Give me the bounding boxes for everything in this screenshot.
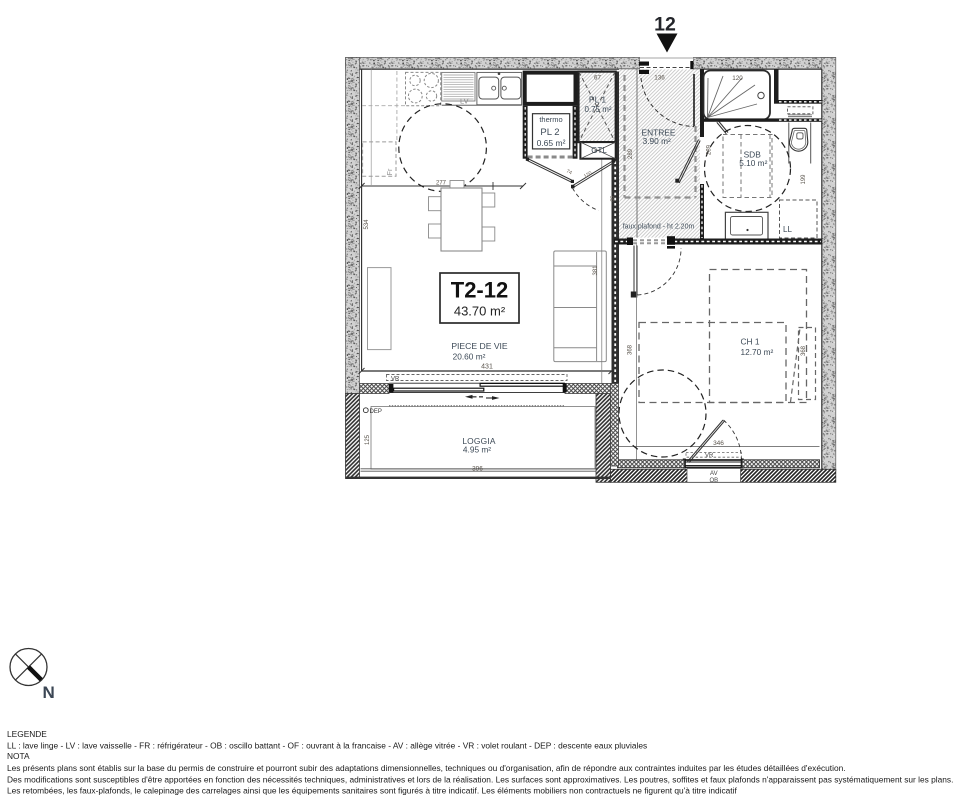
- svg-text:0.65 m²: 0.65 m²: [537, 138, 566, 148]
- svg-text:289: 289: [628, 148, 634, 159]
- svg-text:AV: AV: [710, 471, 718, 477]
- svg-text:136: 136: [654, 75, 665, 82]
- svg-text:GTL: GTL: [591, 146, 607, 155]
- svg-text:Les retombées, les faux-plafon: Les retombées, les faux-plafonds, le cal…: [7, 786, 737, 796]
- svg-text:368: 368: [801, 345, 807, 356]
- svg-text:VR: VR: [705, 453, 714, 459]
- svg-text:DEP: DEP: [370, 409, 382, 415]
- svg-text:N: N: [43, 683, 55, 702]
- svg-text:LV: LV: [460, 97, 469, 106]
- svg-text:LL : lave linge - LV : lave v: LL : lave linge - LV : lave vaisselle - …: [7, 741, 647, 751]
- svg-text:120: 120: [732, 75, 743, 82]
- svg-text:125: 125: [365, 434, 371, 445]
- svg-text:NOTA: NOTA: [7, 751, 30, 761]
- svg-text:431: 431: [481, 364, 493, 371]
- svg-text:OB: OB: [709, 478, 718, 484]
- svg-text:277: 277: [436, 181, 447, 187]
- svg-text:3.90 m²: 3.90 m²: [643, 136, 671, 146]
- svg-text:534: 534: [364, 219, 370, 230]
- svg-text:Les présents plans sont établi: Les présents plans sont établis sur la b…: [7, 763, 846, 773]
- svg-text:LEGENDE: LEGENDE: [7, 729, 47, 739]
- svg-text:PL 2: PL 2: [540, 127, 559, 138]
- svg-text:PIECE DE VIE: PIECE DE VIE: [451, 341, 508, 351]
- svg-text:289: 289: [707, 144, 713, 155]
- svg-text:199: 199: [801, 174, 807, 185]
- svg-text:PL 1: PL 1: [589, 95, 606, 105]
- svg-text:CH 1: CH 1: [740, 337, 759, 347]
- svg-text:VR: VR: [391, 376, 400, 382]
- svg-text:12: 12: [654, 14, 676, 36]
- svg-text:20.60 m²: 20.60 m²: [453, 351, 486, 361]
- svg-text:faux plafond - ht 2.20m: faux plafond - ht 2.20m: [623, 224, 695, 231]
- svg-text:346: 346: [713, 440, 724, 447]
- svg-text:12.70 m²: 12.70 m²: [741, 347, 774, 357]
- svg-text:4.95 m²: 4.95 m²: [463, 444, 491, 454]
- svg-text:5.10 m²: 5.10 m²: [739, 158, 767, 168]
- svg-text:T2-12: T2-12: [451, 278, 508, 303]
- svg-text:90: 90: [608, 196, 614, 202]
- svg-text:67: 67: [594, 75, 601, 82]
- svg-text:Des modifications sont suscept: Des modifications sont susceptibles d'êt…: [7, 775, 953, 785]
- svg-text:381: 381: [593, 265, 599, 276]
- svg-text:Fr: Fr: [387, 168, 394, 175]
- svg-text:43.70 m²: 43.70 m²: [454, 304, 506, 319]
- svg-text:368: 368: [628, 344, 634, 355]
- svg-text:LL: LL: [783, 225, 792, 234]
- svg-text:0.75 m²: 0.75 m²: [584, 105, 611, 114]
- svg-text:thermo: thermo: [539, 115, 562, 124]
